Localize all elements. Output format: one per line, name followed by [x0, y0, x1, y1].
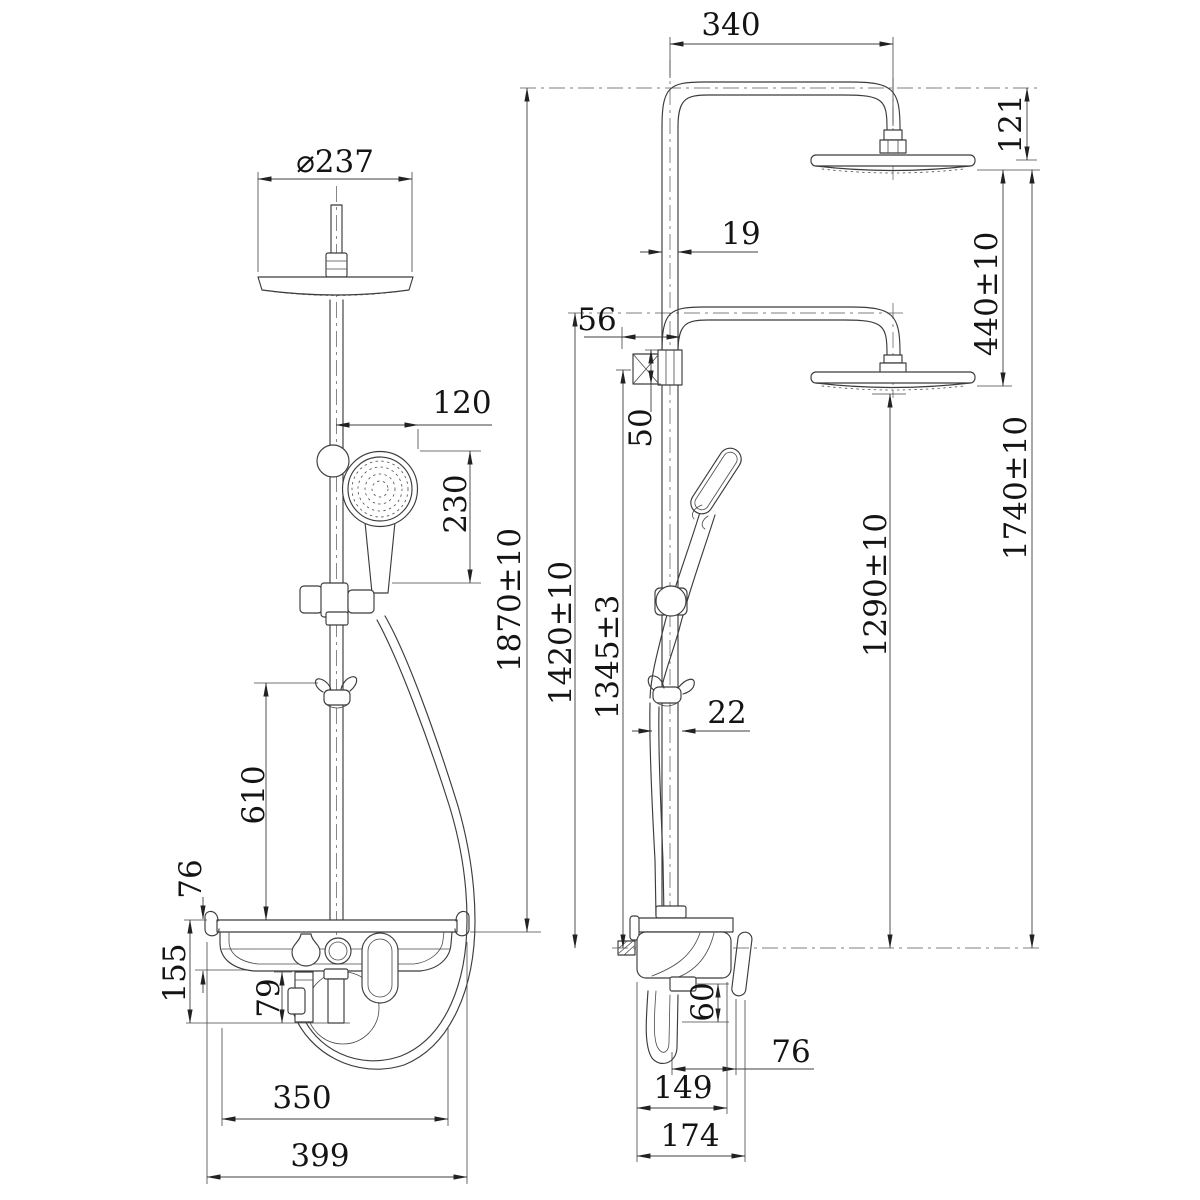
- hose-elbow: [288, 988, 305, 1014]
- dim-label-union-size: 50: [623, 408, 659, 447]
- slide-rail-mount: [317, 445, 349, 477]
- dim-label-head-drop: 121: [993, 94, 1029, 153]
- column-base-collar: [656, 906, 686, 918]
- dim-label-head-gap: 440±10: [969, 232, 1005, 357]
- hose-side: [659, 707, 664, 916]
- lower-head-stem: [884, 355, 902, 363]
- dim-label-arm-reach: 340: [701, 7, 760, 43]
- handshower-face: [343, 452, 418, 527]
- outlet-cap-right: [324, 969, 348, 979]
- handshower-head-side: [687, 444, 746, 518]
- union-nut: [658, 350, 682, 385]
- dim-label-pipe-dia: 19: [721, 216, 760, 252]
- shower-technical-drawing: ⌀237 120 230 610 76 155 79 350 399 1870±…: [0, 0, 1200, 1200]
- dim-label-body-depth: 149: [653, 1070, 712, 1106]
- dim-label-arm-height: 1740±10: [998, 416, 1034, 560]
- dim-label-handshower-length: 230: [438, 474, 474, 533]
- slider-knob-side: [656, 586, 686, 616]
- hose-side: [650, 703, 656, 916]
- top-shower-head: [811, 155, 975, 166]
- slider-collar: [326, 612, 348, 625]
- mixer-lever-side: [731, 931, 753, 996]
- slider-knob: [300, 586, 322, 613]
- dim-label-under-shelf: 79: [251, 978, 287, 1017]
- hose-loop-side: [646, 991, 678, 1063]
- side-dimensions: 340 19 56 50 22 121 440±10 1740±10 1290±…: [543, 7, 1040, 1162]
- dim-label-total-height: 1870±10: [492, 528, 528, 672]
- top-head-nut: [880, 140, 906, 153]
- dim-label-wall-clearance: 56: [577, 302, 616, 338]
- dim-label-shelf-width: 350: [272, 1080, 331, 1116]
- front-dimensions: ⌀237 120 230 610 76 155 79 350 399 1870±…: [157, 88, 541, 1184]
- diverter-knob: [292, 934, 320, 966]
- shelf-side: [632, 918, 733, 932]
- dim-label-head-diameter: ⌀237: [296, 144, 374, 180]
- dim-label-shelf-thickness: 76: [173, 859, 209, 898]
- side-view: [520, 60, 1042, 1063]
- hose-hook-side: [653, 687, 681, 703]
- top-arm-outer: [662, 82, 900, 132]
- hose-hook: [324, 690, 350, 705]
- dim-label-outlet-drop: 60: [685, 982, 721, 1021]
- dim-label-lower-arm-height: 1420±10: [543, 561, 579, 705]
- dim-label-front-clearance: 76: [771, 1034, 810, 1070]
- dim-label-overall-depth: 174: [660, 1118, 719, 1154]
- mixer-lever: [362, 933, 398, 1003]
- dim-label-shelf-full-width: 399: [290, 1138, 349, 1174]
- lower-shower-head: [811, 372, 975, 383]
- outlet-cylinder-right: [328, 979, 344, 1023]
- top-arm-inner: [678, 95, 887, 132]
- top-head-stem: [884, 130, 902, 140]
- overhead-connector-nut: [326, 253, 347, 277]
- front-view: [205, 186, 475, 1069]
- lower-arm-inner: [678, 320, 887, 357]
- dim-label-hose-gap: 22: [707, 695, 746, 731]
- drawing-canvas: ⌀237 120 230 610 76 155 79 350 399 1870±…: [0, 0, 1200, 1200]
- shelf-plate: [217, 920, 457, 932]
- dim-label-hook-height: 610: [236, 765, 272, 824]
- dim-label-shelf-drop: 155: [157, 943, 193, 1002]
- lower-arm-outer: [662, 307, 900, 357]
- dim-label-inlet-height: 1345±3: [590, 595, 626, 720]
- handshower-capsule: [687, 444, 746, 518]
- hose-loop-side-inner: [654, 991, 670, 1052]
- lever-bar: [731, 931, 753, 996]
- dim-label-handshower-offset: 120: [432, 385, 491, 421]
- mixer-body-side: [637, 932, 731, 978]
- slider-clamp: [348, 590, 374, 613]
- handshower-handle: [365, 522, 395, 593]
- dim-label-lower-head-height: 1290±10: [858, 513, 894, 657]
